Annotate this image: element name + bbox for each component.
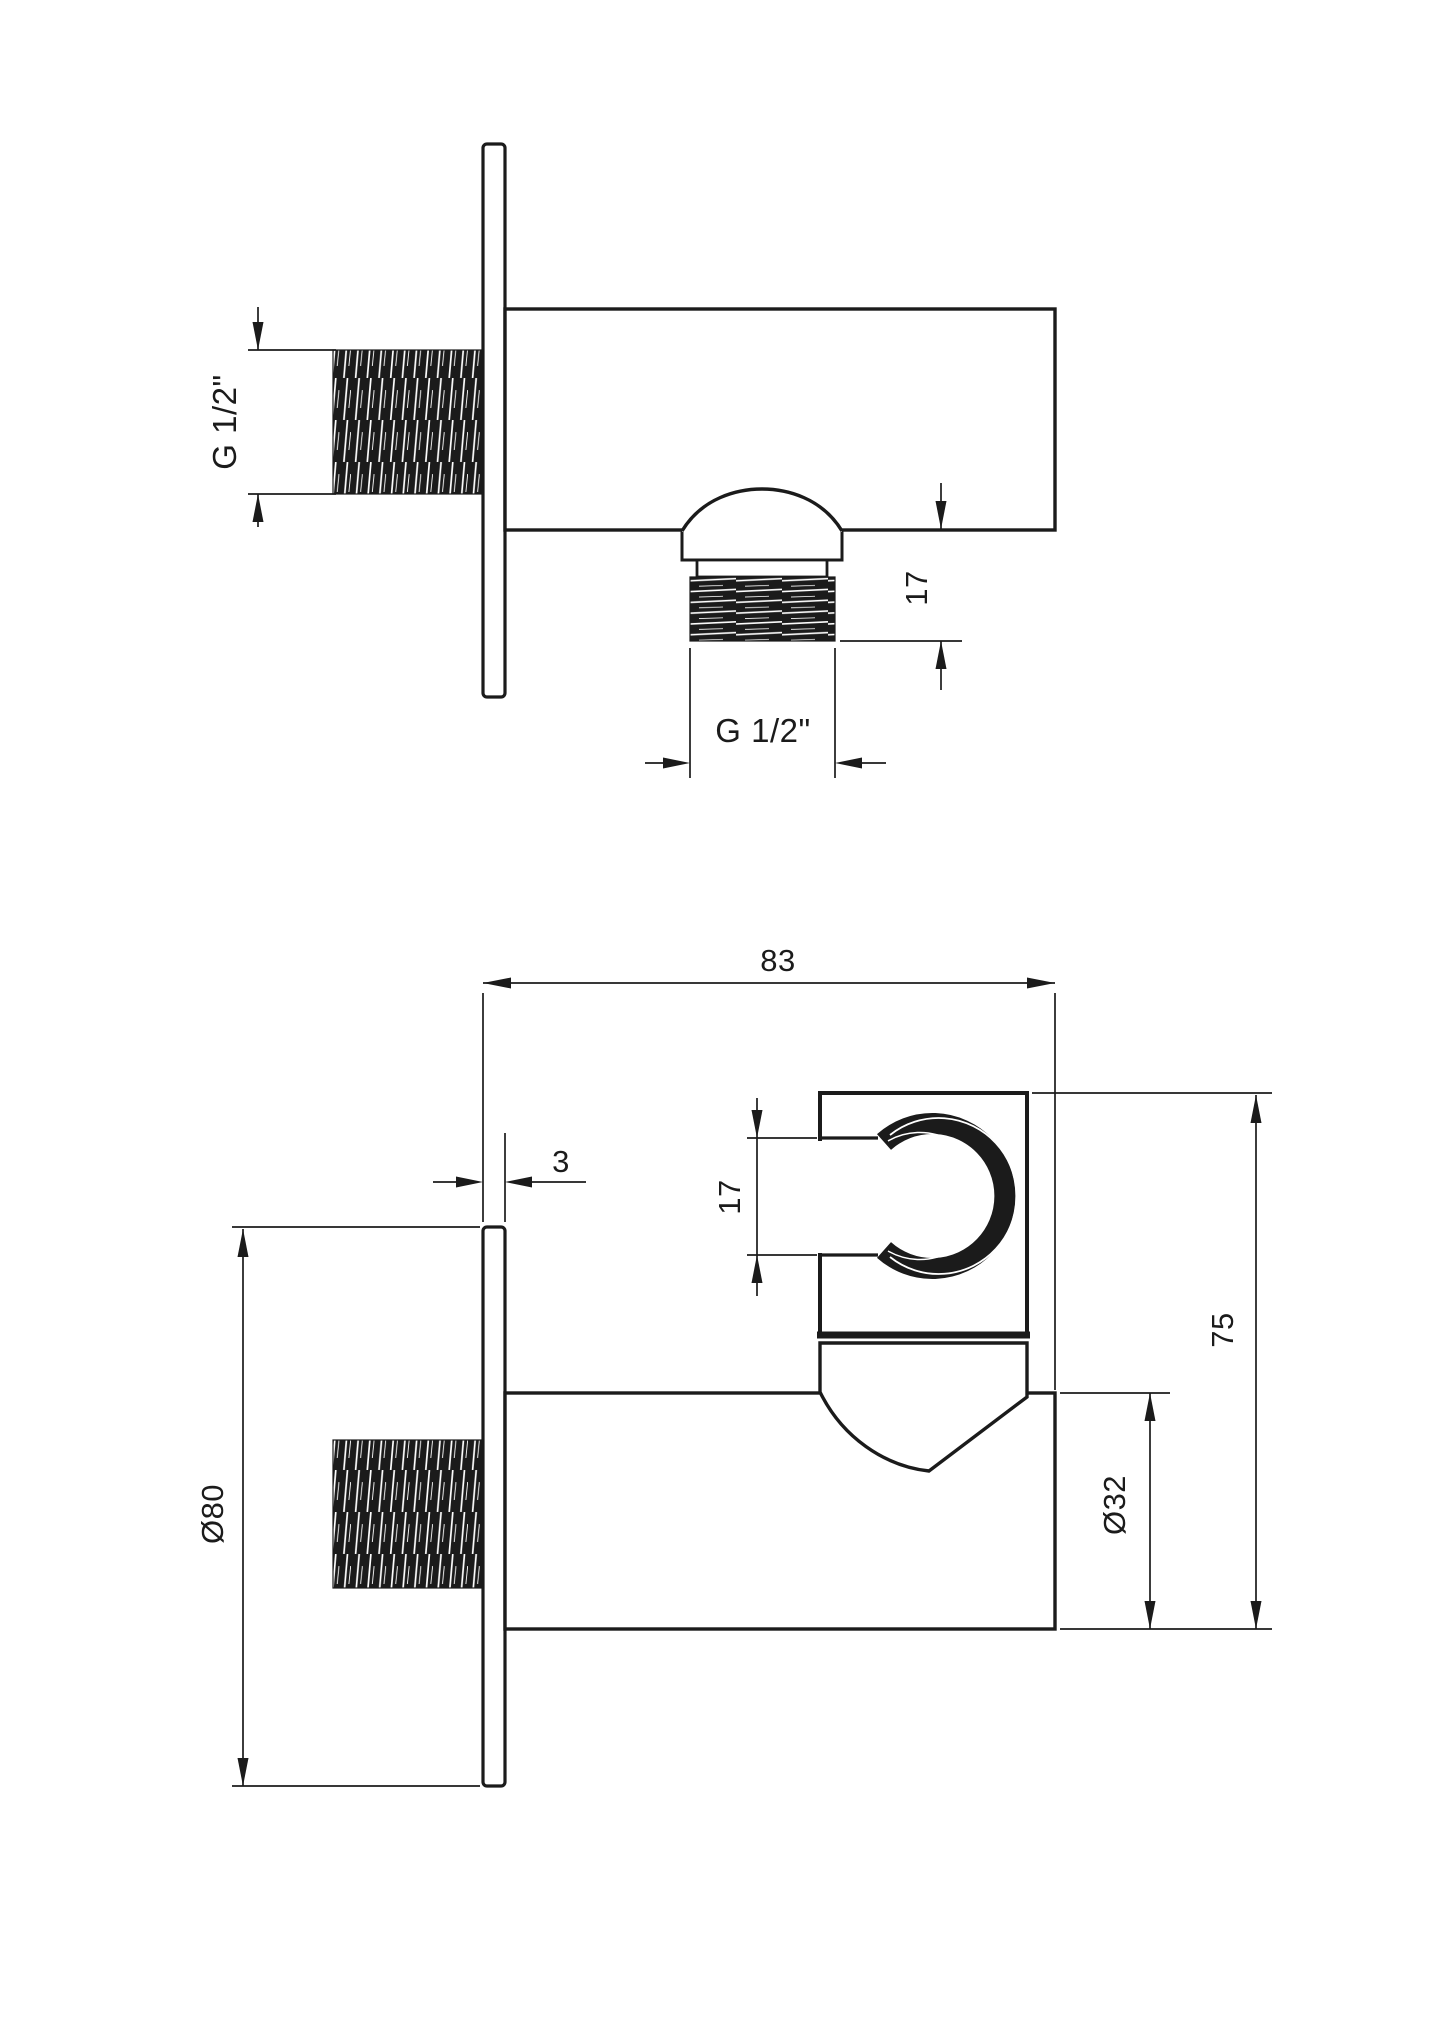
front-wall-plate [483, 1227, 505, 1786]
arrow-up-icon [1145, 1393, 1156, 1421]
arrow-up-icon [1251, 1095, 1262, 1123]
arrow-left-icon [835, 758, 862, 769]
dim-holder-opening [747, 1098, 817, 1296]
arrow-down-icon [238, 1758, 249, 1786]
technical-drawing: G 1/2" 17 G 1/2" [0, 0, 1445, 2043]
height-label: 75 [1205, 1312, 1240, 1347]
outlet-cap [682, 530, 842, 560]
arrow-up-icon [238, 1229, 249, 1257]
holder-notch [816, 1141, 870, 1253]
dim-height [1032, 1093, 1272, 1629]
top-view: G 1/2" 17 G 1/2" [206, 144, 1055, 778]
dim-inlet-thread [248, 307, 336, 527]
drawing-canvas: G 1/2" 17 G 1/2" [0, 0, 1445, 2043]
arrow-down-icon [253, 322, 264, 350]
arrow-down-icon [1251, 1601, 1262, 1629]
front-inlet-thread [333, 1440, 483, 1588]
arrow-left-icon [505, 1177, 532, 1188]
arrow-up-icon [253, 494, 264, 522]
holder-opening-label: 17 [712, 1179, 747, 1214]
plate-thickness-label: 3 [552, 1144, 570, 1179]
outlet-length-label: 17 [899, 570, 934, 605]
arrow-right-icon [1027, 978, 1055, 989]
arrow-right-icon [456, 1177, 483, 1188]
outlet-thread-label: G 1/2" [715, 712, 810, 749]
arrow-up-icon [752, 1255, 763, 1283]
arrow-down-icon [752, 1110, 763, 1138]
outlet-thread [690, 577, 835, 641]
side-wall-plate [483, 144, 505, 697]
arrow-left-icon [483, 978, 511, 989]
arrow-down-icon [1145, 1601, 1156, 1629]
depth-label: 83 [760, 943, 795, 978]
arrow-up-icon [936, 641, 947, 669]
plate-diameter-label: Ø80 [195, 1484, 230, 1544]
outlet-collar [697, 560, 827, 577]
inlet-thread-label: G 1/2" [206, 374, 243, 469]
body-diameter-label: Ø32 [1097, 1475, 1132, 1535]
side-inlet-thread [333, 350, 483, 494]
arrow-right-icon [663, 758, 690, 769]
bottom-view: 83 3 17 75 [195, 943, 1272, 1786]
